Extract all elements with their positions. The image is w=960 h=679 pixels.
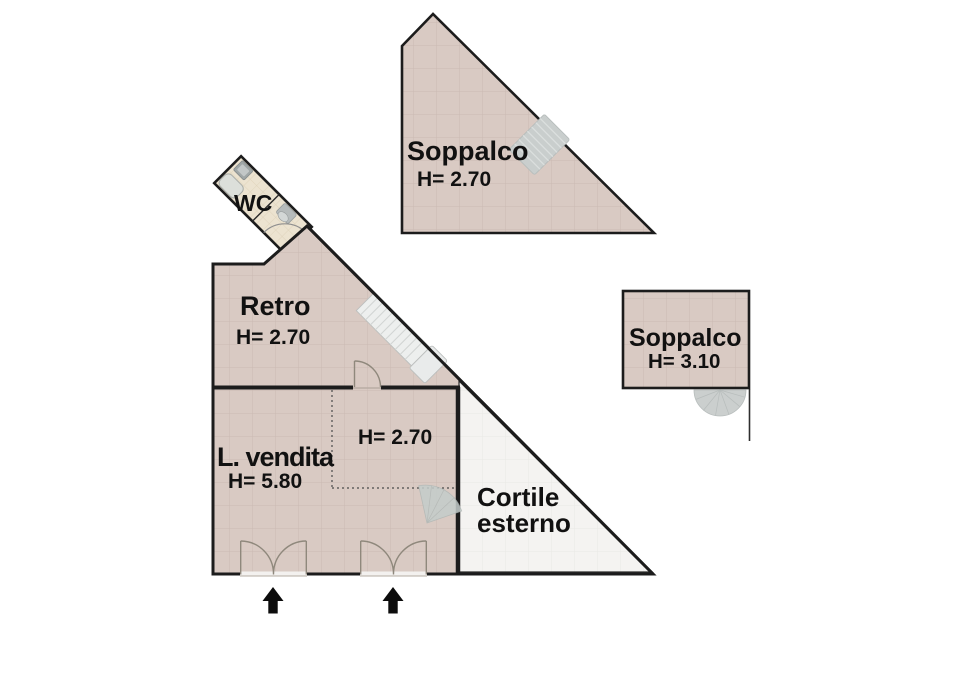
room-soppalco-top: Soppalco H= 2.70 [402,14,654,233]
soppalco-top-outline [402,14,654,233]
spiral-stair-icon [694,390,746,416]
main-building: Retro H= 2.70 H= 2.70 L. vendita H= 5.80… [213,226,653,614]
room-height-soppalco-top: H= 2.70 [417,168,491,191]
room-label-cortile-line2: esterno [477,508,571,538]
entrance-arrow-icon [263,587,284,614]
entrance-arrow-icon [383,587,404,614]
room-label-retro: Retro [240,291,311,321]
room-height-vendita: H= 5.80 [228,470,302,493]
room-height-retro: H= 2.70 [236,326,310,349]
room-label-soppalco-right: Soppalco [629,324,742,352]
room-label-soppalco-top: Soppalco [407,136,529,166]
floor-plan-canvas: Soppalco H= 2.70 Soppalco H= 3.10 WC [0,0,960,679]
room-label-wc: WC [234,190,272,216]
floor-plan-drawing: Soppalco H= 2.70 Soppalco H= 3.10 WC [0,0,960,679]
room-height-soppalco-right: H= 3.10 [648,350,720,373]
room-label-vendita: L. vendita [217,442,335,472]
room-soppalco-right: Soppalco H= 3.10 [623,291,750,441]
room-height-under-mezzanine: H= 2.70 [358,426,432,449]
